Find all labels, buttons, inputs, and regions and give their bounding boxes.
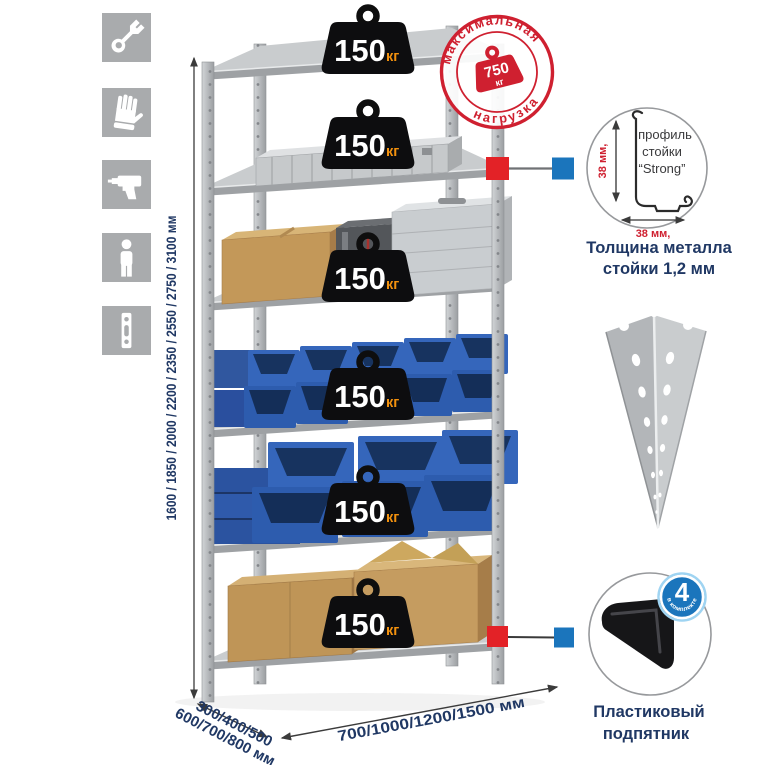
rack-illustration: 150 кг 150 кг 150 кг 150 кг (0, 0, 765, 765)
badge-count: 4 (675, 577, 690, 607)
svg-text:150: 150 (334, 494, 386, 529)
svg-text:150: 150 (334, 261, 386, 296)
profile-text-3: “Strong” (639, 161, 686, 176)
svg-text:150: 150 (334, 379, 386, 414)
height-dimension-label: 1600 / 1850 / 2000 / 2200 / 2350 / 2550 … (163, 216, 179, 521)
profile-text-2: стойки (642, 144, 682, 159)
svg-text:кг: кг (386, 277, 399, 293)
metal-thickness-caption-2: стойки 1,2 мм (603, 260, 715, 278)
profile-callout: 38 мм, 38 мм, профиль стойки “Strong” (587, 108, 707, 240)
profile-text-1: профиль (638, 127, 692, 142)
foot-connector (487, 626, 574, 648)
rack-post-front-left (202, 62, 214, 702)
plastic-foot-callout: 4 в комплекте (589, 573, 711, 695)
svg-text:150: 150 (334, 607, 386, 642)
load-value: 150 (334, 33, 386, 68)
rack-post-front-right (492, 44, 504, 684)
plastic-foot-caption-1: Пластиковый (593, 703, 704, 721)
svg-text:кг: кг (386, 623, 399, 639)
product-infographic: 150 кг 150 кг 150 кг 150 кг (0, 0, 765, 765)
weight-badge: 150 кг (322, 8, 415, 75)
profile-vertical-dim: 38 мм, (597, 144, 609, 179)
load-unit: кг (386, 49, 399, 65)
svg-text:150: 150 (334, 128, 386, 163)
metal-thickness-caption-1: Толщина металла (586, 239, 732, 257)
weight-badge: 150 кг (322, 103, 415, 170)
svg-text:кг: кг (386, 510, 399, 526)
angle-post-image (606, 309, 706, 528)
svg-text:кг: кг (386, 144, 399, 160)
profile-connector (486, 157, 574, 180)
height-dimension: 1600 / 1850 / 2000 / 2200 / 2350 / 2550 … (163, 58, 194, 698)
svg-text:кг: кг (386, 395, 399, 411)
plastic-foot-caption-2: подпятник (603, 725, 690, 743)
